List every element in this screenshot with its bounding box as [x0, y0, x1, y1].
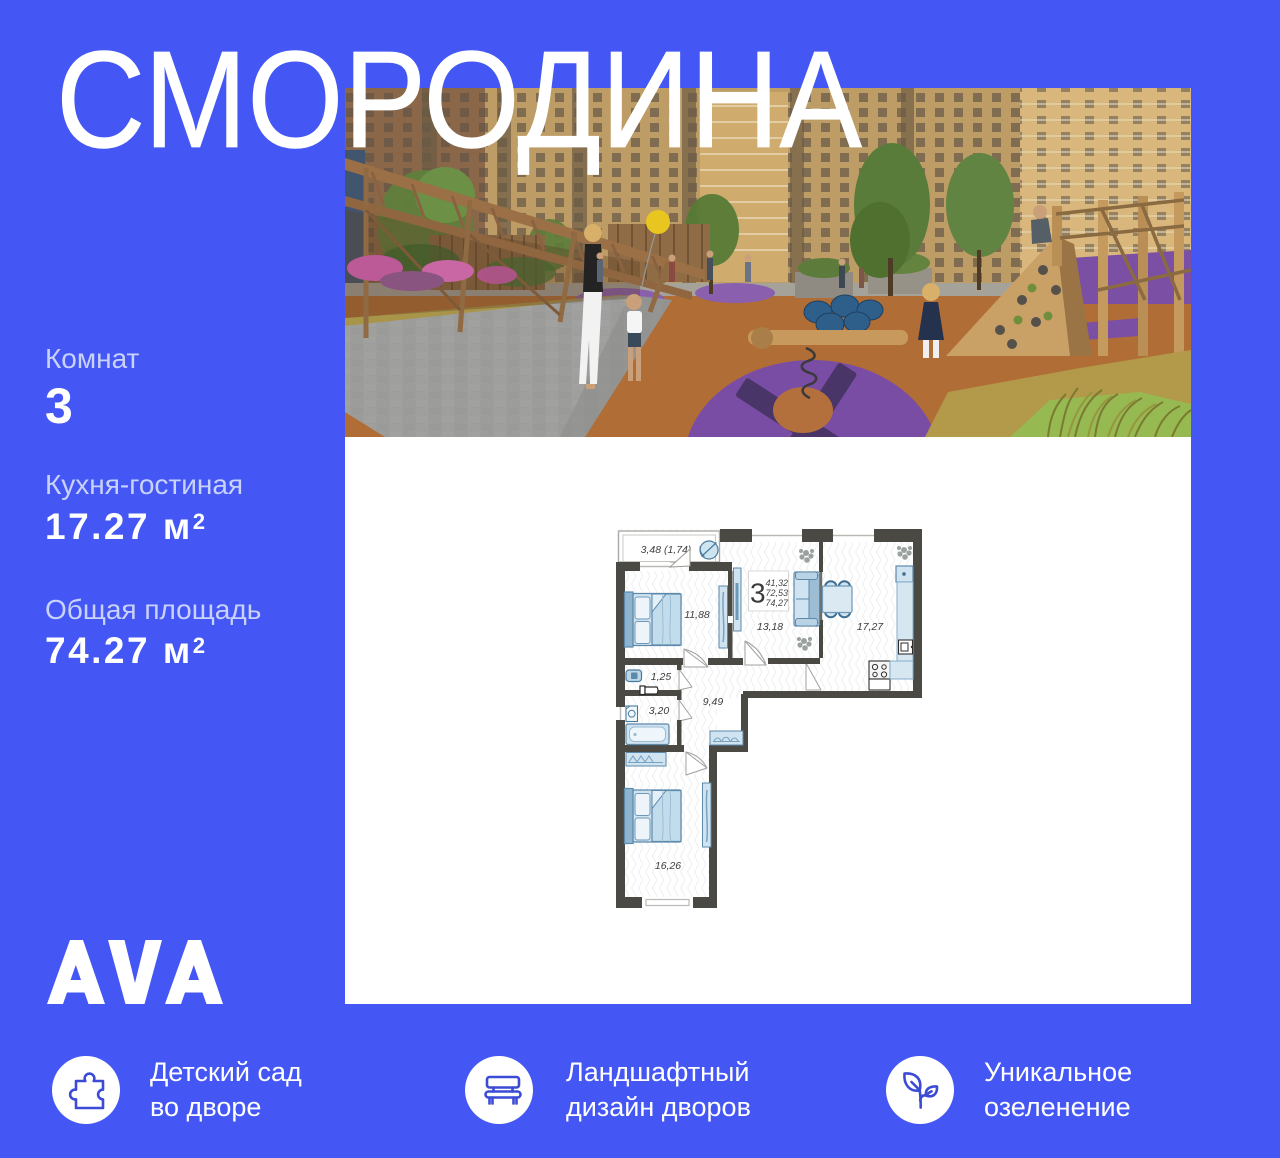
svg-text:41,32: 41,32	[766, 578, 789, 588]
svg-text:9,49: 9,49	[703, 696, 724, 708]
svg-text:СМОРОДИНА: СМОРОДИНА	[56, 23, 862, 177]
svg-text:3: 3	[750, 578, 766, 609]
svg-text:3,20: 3,20	[649, 705, 670, 717]
svg-text:13,18: 13,18	[757, 621, 783, 633]
svg-text:16,26: 16,26	[655, 860, 681, 872]
svg-text:74,27: 74,27	[766, 598, 790, 608]
svg-text:17,27: 17,27	[857, 621, 884, 633]
svg-text:1,25: 1,25	[651, 671, 672, 683]
svg-text:11,88: 11,88	[684, 609, 710, 621]
svg-text:72,53: 72,53	[766, 588, 789, 598]
